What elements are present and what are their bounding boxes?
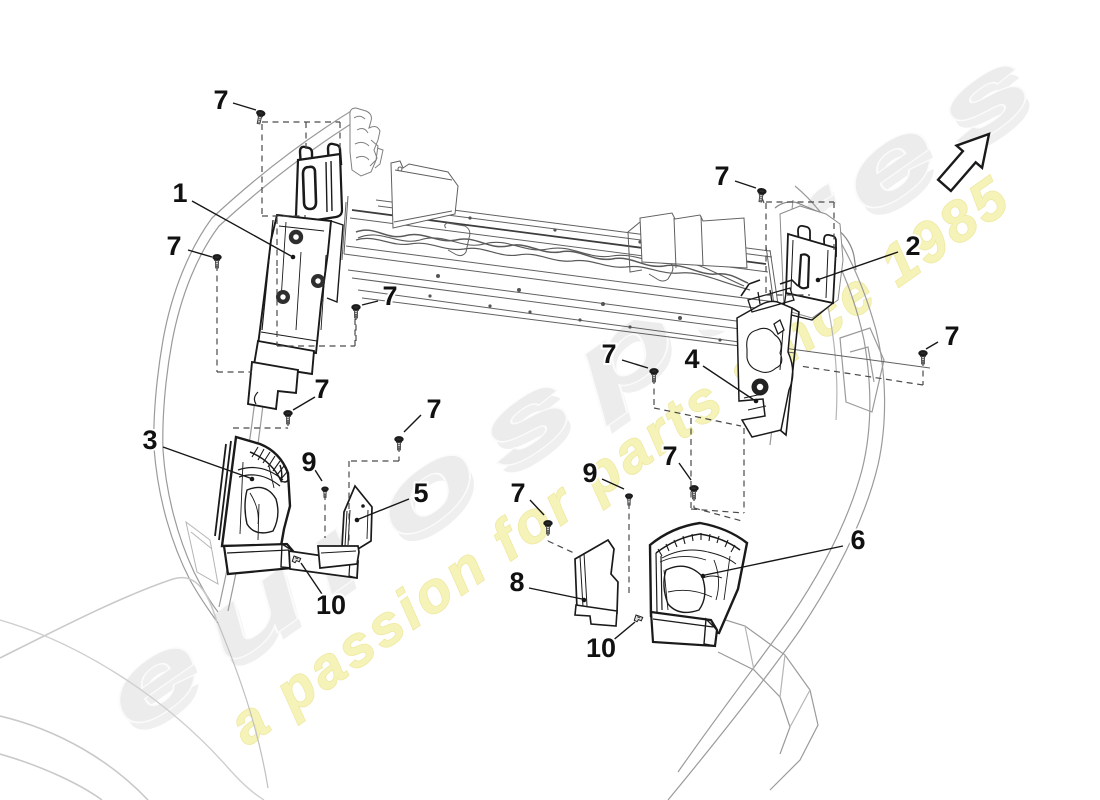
svg-text:1: 1 bbox=[172, 178, 187, 208]
svg-text:7: 7 bbox=[944, 321, 959, 351]
svg-text:7: 7 bbox=[314, 374, 329, 404]
svg-text:7: 7 bbox=[213, 85, 228, 115]
svg-text:3: 3 bbox=[142, 425, 157, 455]
svg-text:5: 5 bbox=[413, 478, 428, 508]
svg-text:6: 6 bbox=[850, 525, 865, 555]
svg-text:7: 7 bbox=[166, 231, 181, 261]
svg-text:7: 7 bbox=[510, 478, 525, 508]
svg-text:10: 10 bbox=[316, 590, 346, 620]
svg-text:7: 7 bbox=[662, 441, 677, 471]
svg-text:4: 4 bbox=[684, 344, 699, 374]
svg-text:9: 9 bbox=[301, 447, 316, 477]
svg-text:10: 10 bbox=[586, 633, 616, 663]
svg-text:2: 2 bbox=[905, 231, 920, 261]
svg-text:9: 9 bbox=[582, 458, 597, 488]
svg-text:7: 7 bbox=[714, 161, 729, 191]
svg-text:7: 7 bbox=[426, 394, 441, 424]
svg-text:7: 7 bbox=[382, 281, 397, 311]
svg-text:8: 8 bbox=[509, 567, 524, 597]
svg-text:7: 7 bbox=[601, 339, 616, 369]
